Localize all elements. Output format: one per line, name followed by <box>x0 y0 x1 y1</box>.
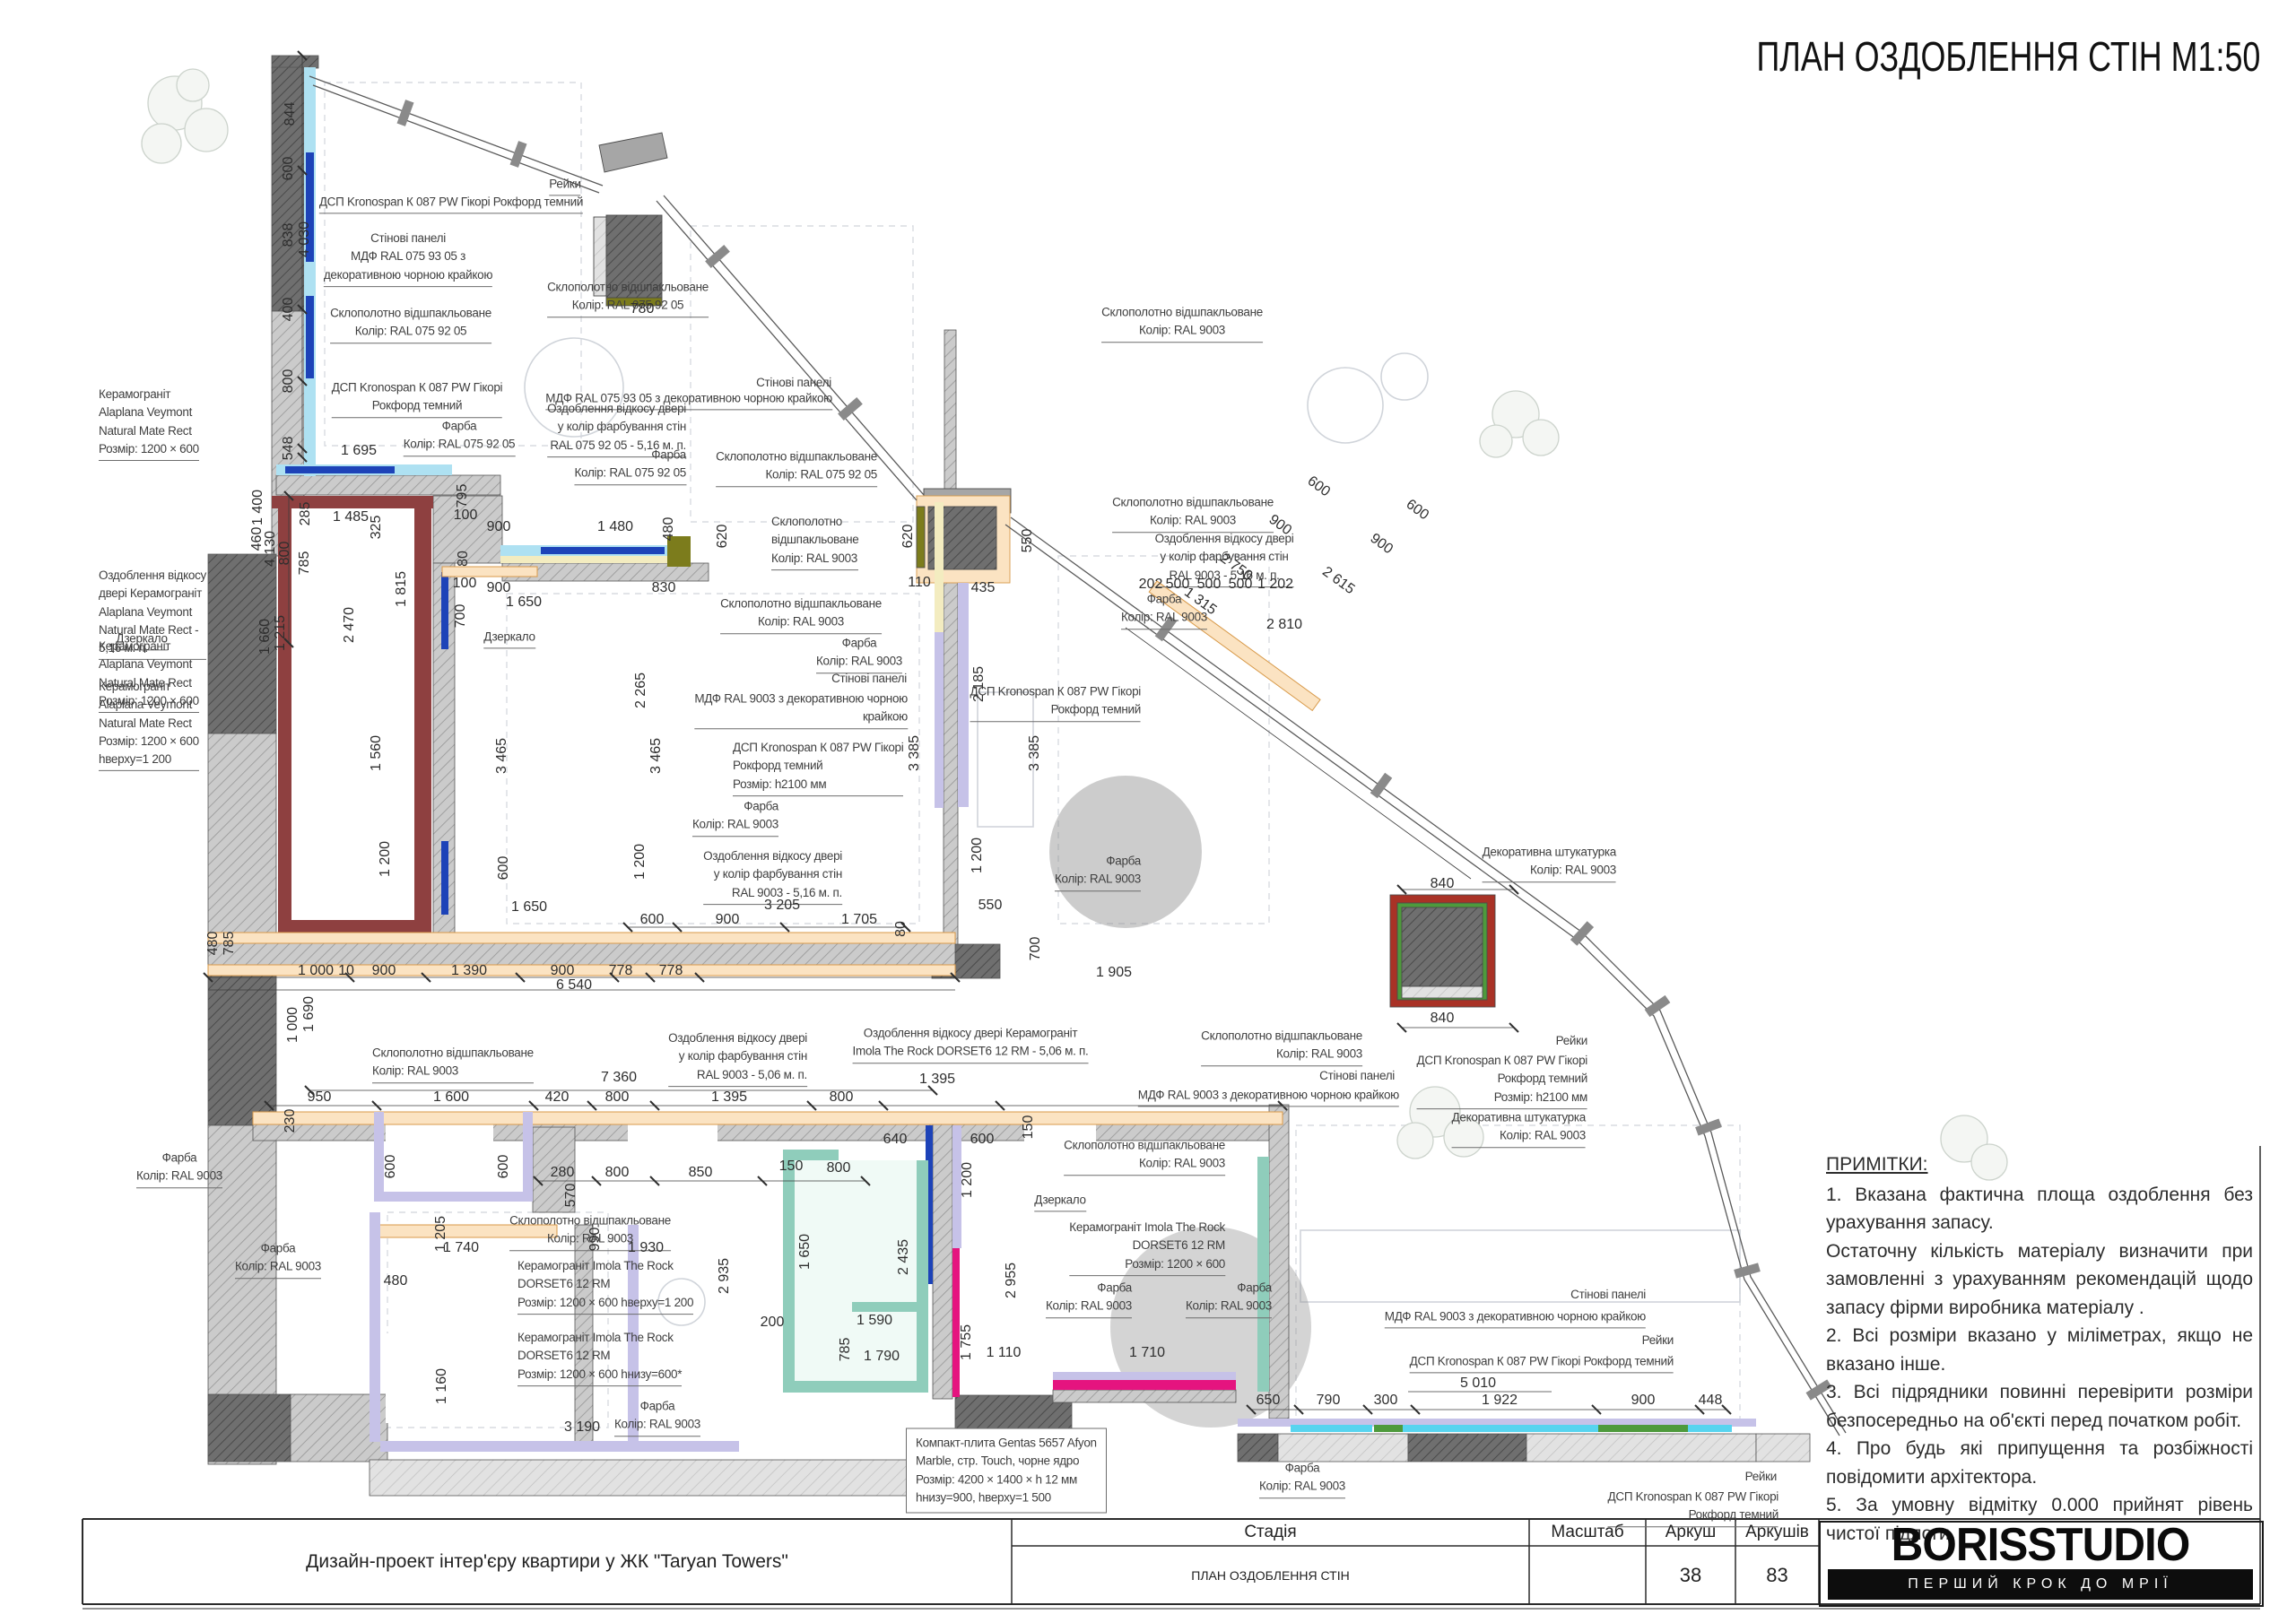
annotation-label: Фарба Колір: RAL 075 92 05 <box>574 446 686 485</box>
dimension-text: 990 <box>587 1228 604 1252</box>
dimension-text: 6 540 <box>556 977 592 994</box>
dimension-text: 800 <box>605 1165 630 1181</box>
dimension-text: 1 905 <box>1096 965 1132 981</box>
dimension-text: 325 <box>369 516 385 540</box>
sheet-number-value: 38 <box>1646 1546 1735 1604</box>
dimension-text: 448 <box>1699 1393 1723 1409</box>
annotation-label: Склополотно відшпакльоване Колір: RAL 90… <box>372 1044 534 1083</box>
dimension-text: 285 <box>298 502 314 526</box>
dimension-text: 1 815 <box>394 571 410 607</box>
notes-list: 1. Вказана фактична площа оздоблення без… <box>1826 1181 2253 1549</box>
dimension-text: 230 <box>283 1109 299 1133</box>
dimension-text: 480 <box>384 1273 408 1289</box>
dimension-text: 548 <box>281 437 297 461</box>
dimension-text: 1 695 <box>341 443 377 459</box>
annotation-label: ДСП Kronospan К 087 PW Гікорі Рокфорд те… <box>1417 1052 1587 1109</box>
dimension-text: 1 200 <box>632 844 648 880</box>
dimension-text: 1 650 <box>511 899 547 916</box>
dimension-text: 5 010 <box>1460 1376 1496 1392</box>
annotation-label: ДСП Kronospan К 087 PW Гікорі Рокфорд те… <box>970 682 1141 722</box>
dimension-text: 1 590 <box>857 1313 892 1329</box>
annotation-label: Оздоблення відкосу двері Керамограніт Im… <box>853 1024 1089 1063</box>
annotation-label: Склополотно відшпакльоване Колір: RAL 90… <box>1201 1027 1362 1066</box>
dimension-text: 900 <box>487 519 511 535</box>
dimension-text: 800 <box>827 1160 851 1176</box>
dimension-text: 1 690 <box>301 996 317 1032</box>
dimension-text: 840 <box>1431 1011 1455 1027</box>
dimension-text: 3 385 <box>1027 735 1043 771</box>
annotation-label: Оздоблення відкосу двері у колір фарбува… <box>668 1029 807 1087</box>
annotation-label: Керамограніт Alaplana Veymont Natural Ma… <box>99 678 199 771</box>
annotation-label: Декоративна штукатурка Колір: RAL 9003 <box>1483 843 1616 882</box>
dimension-text: 1 400 <box>250 490 266 525</box>
dimension-text: 900 <box>372 963 396 979</box>
dimension-text: 550 <box>1020 529 1036 553</box>
notes-block: ПРИМІТКИ: 1. Вказана фактична площа оздо… <box>1826 1150 2253 1548</box>
scale-header: Масштаб <box>1529 1519 1646 1546</box>
dimension-text: 400 <box>281 298 297 322</box>
dimension-text: 1 485 <box>333 509 369 525</box>
dimension-text: 600 <box>496 1155 512 1179</box>
notes-item: 4. Про будь які припущення та розбіжност… <box>1826 1435 2253 1491</box>
dimension-text: 550 <box>978 898 1003 914</box>
dimension-text: 2 955 <box>1004 1263 1020 1298</box>
notes-item: 2. Всі розміри вказано у міліметрах, якщ… <box>1826 1322 2253 1378</box>
dimension-text: 2 470 <box>342 607 358 643</box>
dimension-text: 500 <box>1197 577 1222 593</box>
annotation-label: Фарба Колір: RAL 9003 <box>1046 1279 1132 1318</box>
dimension-text: 850 <box>689 1165 713 1181</box>
annotation-label: Рейки <box>1556 1032 1587 1050</box>
annotation-label: Фарба Колір: RAL 075 92 05 <box>404 417 516 456</box>
dimension-text: 2 810 <box>1266 617 1302 633</box>
dimension-text: 1 110 <box>987 1345 1022 1361</box>
dimension-text: 1 200 <box>960 1162 976 1198</box>
annotation-label: ДСП Kronospan К 087 PW Гікорі Рокфорд те… <box>319 193 583 213</box>
studio-slogan: ПЕРШИЙ КРОК ДО МРІЇ <box>1828 1569 2253 1600</box>
dimension-text: 1 755 <box>959 1324 975 1360</box>
dimension-text: 3 205 <box>764 898 800 914</box>
annotation-label: Фарба Колір: RAL 9003 <box>1259 1459 1345 1498</box>
dimension-text: 3 465 <box>494 738 510 774</box>
notes-item: 3. Всі підрядники повинні перевірити роз… <box>1826 1378 2253 1435</box>
dimension-text: 600 <box>640 912 665 928</box>
dimension-text: 785 <box>297 551 313 576</box>
dimension-text: 785 <box>222 932 238 956</box>
dimension-text: 1 790 <box>864 1349 900 1365</box>
dimension-text: 2 935 <box>717 1258 733 1294</box>
dimension-text: 785 <box>838 1338 854 1362</box>
dimension-text: 80 <box>456 551 472 567</box>
stage-header: Стадія <box>1012 1519 1529 1546</box>
studio-logo: BORISSTUDIO <box>1833 1524 2248 1566</box>
dimension-text: 1 000 <box>298 963 334 979</box>
dimension-text: 800 <box>830 1089 854 1106</box>
notes-heading: ПРИМІТКИ: <box>1826 1150 2253 1179</box>
annotation-label: Керамограніт Alaplana Veymont Natural Ma… <box>99 386 199 461</box>
dimension-text: 844 <box>283 102 299 126</box>
dimension-text: 1 000 <box>285 1007 301 1043</box>
dimension-text: 2 435 <box>896 1239 912 1275</box>
annotation-label: Склополотно відшпакльоване Колір: RAL 90… <box>1112 493 1274 533</box>
sheet-number-header: Аркуш <box>1646 1519 1735 1546</box>
dimension-text: 800 <box>281 369 297 394</box>
dimension-text: 1 922 <box>1482 1393 1518 1409</box>
dimension-text: 100 <box>453 576 477 592</box>
annotation-label: МДФ RAL 9003 з декоративною чорною крайк… <box>694 690 908 729</box>
annotation-label: МДФ RAL 9003 з декоративною чорною крайк… <box>1385 1307 1646 1328</box>
dimension-text: 778 <box>609 963 633 979</box>
annotation-label: ДСП Kronospan К 087 PW Гікорі Рокфорд те… <box>1410 1352 1674 1373</box>
dimension-text: 1 480 <box>597 519 633 535</box>
annotation-label: Керамограніт Imola The Rock DORSET6 12 R… <box>517 1257 693 1315</box>
dimension-text: 480 <box>205 932 222 956</box>
door-openings <box>386 1121 1096 1423</box>
dimension-text: 100 <box>454 508 478 524</box>
dimension-text: 950 <box>308 1089 332 1106</box>
dimension-text: 800 <box>605 1089 630 1106</box>
dimension-text: 1 705 <box>841 912 877 928</box>
annotation-label: Керамограніт Imola The Rock DORSET6 12 R… <box>1069 1219 1225 1276</box>
dimension-text: 840 <box>1431 876 1455 892</box>
dimension-text: 4 030 <box>297 221 313 257</box>
dimension-text: 620 <box>715 525 731 549</box>
annotation-label: Рейки <box>1745 1468 1777 1486</box>
annotation-label: Стінові панелі <box>831 670 907 688</box>
annotation-label: Склополотно відшпакльоване Колір: RAL 90… <box>1101 303 1263 343</box>
dimension-text: 480 <box>661 517 677 542</box>
dimension-text: 10 <box>338 963 354 979</box>
dimension-text: 1 205 <box>433 1216 449 1252</box>
dimension-text: 1 650 <box>797 1234 813 1270</box>
dimension-text: 200 <box>761 1315 785 1331</box>
dimension-text: 1 660 <box>257 619 274 655</box>
sheet-title: ПЛАН ОЗДОБЛЕННЯ СТІН М1:50 <box>1756 32 2260 81</box>
annotation-label: Склополотно відшпакльоване Колір: RAL 90… <box>720 595 882 634</box>
annotation-label: Компакт-плита Gentas 5657 Afyon Marble, … <box>906 1428 1107 1514</box>
dimension-text: 800 <box>277 542 293 566</box>
dimension-text: 700 <box>453 604 469 629</box>
dimension-text: 3 190 <box>564 1419 600 1436</box>
dimension-text: 790 <box>1317 1393 1341 1409</box>
annotation-label: Склополотно відшпакльоване Колір: RAL 07… <box>547 278 709 317</box>
annotation-label: Стінові панелі <box>1570 1286 1646 1304</box>
annotation-label: ДСП Kronospan К 087 PW Гікорі Рокфорд те… <box>332 378 502 418</box>
dimension-text: 1 710 <box>1129 1345 1165 1361</box>
dimension-text: 1 202 <box>1257 577 1293 593</box>
dimension-text: 1 160 <box>434 1368 450 1404</box>
dimension-text: 420 <box>545 1089 570 1106</box>
annotation-label: МДФ RAL 9003 з декоративною чорною крайк… <box>1138 1086 1399 1107</box>
dimension-text: 780 <box>631 301 655 317</box>
drawing-sheet: { "title": "ПЛАН ОЗДОБЛЕННЯ СТІН М1:50",… <box>0 0 2296 1623</box>
annotation-label: Фарба Колір: RAL 9003 <box>235 1239 321 1279</box>
dimension-text: 600 <box>496 856 512 881</box>
notes-item: 1. Вказана фактична площа оздоблення без… <box>1826 1181 2253 1237</box>
annotation-label: Фарба Колір: RAL 9003 <box>1055 852 1141 891</box>
annotation-label: Керамограніт Imola The Rock DORSET6 12 R… <box>517 1329 682 1386</box>
dimension-text: 2 265 <box>633 673 649 708</box>
annotation-label: Стінові панелі <box>1319 1067 1395 1085</box>
dimension-text: 1 395 <box>919 1072 955 1088</box>
dimension-text: 7 360 <box>601 1070 637 1086</box>
dimension-text: 150 <box>779 1159 804 1175</box>
dimension-text: 600 <box>281 157 297 181</box>
annotation-label: Фарба Колір: RAL 9003 <box>692 797 778 837</box>
dimension-text: 2 185 <box>971 666 987 702</box>
dimension-text: 700 <box>1028 937 1044 961</box>
dimension-text: 1 215 <box>273 615 289 651</box>
dimension-text: 778 <box>659 963 683 979</box>
dimension-text: 80 <box>893 921 909 937</box>
sheets-total-value: 83 <box>1735 1546 1819 1604</box>
dimension-text: 1 390 <box>451 963 487 979</box>
annotation-label: Рейки <box>1642 1332 1674 1350</box>
dimension-text: 600 <box>970 1132 995 1148</box>
dimension-text: 3 465 <box>648 738 665 774</box>
dimension-text: 900 <box>1631 1393 1656 1409</box>
floor-plan-canvas: ПЛАН ОЗДОБЛЕННЯ СТІН М1:50 РейкиДСП Kron… <box>0 0 2296 1623</box>
dimension-text: 838 <box>281 223 297 247</box>
annotation-label: Декоративна штукатурка Колір: RAL 9003 <box>1452 1108 1586 1148</box>
dimension-text: 900 <box>716 912 740 928</box>
dimension-text: 3 385 <box>907 735 923 771</box>
annotation-label: Фарба Колір: RAL 9003 <box>136 1149 222 1188</box>
annotation-label: Стінові панелі МДФ RAL 075 93 05 з декор… <box>324 230 492 287</box>
annotation-label: Склополотно відшпакльоване Колір: RAL 07… <box>330 304 491 343</box>
annotation-label: Фарба Колір: RAL 9003 <box>614 1397 700 1436</box>
dimension-text: 1 560 <box>369 735 385 771</box>
annotation-label: Оздоблення відкосу двері у колір фарбува… <box>703 847 842 905</box>
dimension-text: 1 650 <box>506 595 542 611</box>
dimension-text: 110 <box>908 575 931 591</box>
scale-value <box>1529 1546 1646 1604</box>
dimension-text: 460 <box>249 527 265 551</box>
annotation-label: Склополотно відшпакльоване Колір: RAL 90… <box>771 513 858 570</box>
dimension-text: 1 395 <box>711 1089 747 1106</box>
notes-item: Остаточну кількість матеріалу визначити … <box>1826 1237 2253 1323</box>
dimension-text: 300 <box>1374 1393 1398 1409</box>
annotation-label: Дзеркало <box>1034 1191 1086 1211</box>
sheets-total-header: Аркушів <box>1735 1519 1819 1546</box>
dimension-text: 280 <box>551 1165 575 1181</box>
project-title-cell: Дизайн-проект інтер'єру квартири у ЖК "T… <box>83 1519 1012 1604</box>
dimension-text: 795 <box>455 484 471 508</box>
dimension-text: 150 <box>1021 1115 1037 1140</box>
dimension-text: 650 <box>1257 1393 1281 1409</box>
dimension-text: 202 <box>1139 577 1163 593</box>
annotation-label: Склополотно відшпакльоване Колір: RAL 90… <box>1064 1136 1225 1176</box>
annotation-label: Фарба Колір: RAL 9003 <box>816 634 902 673</box>
dimension-text: 435 <box>971 580 996 596</box>
annotation-label: Дзеркало <box>483 628 535 648</box>
dimension-text: 1 200 <box>970 838 986 873</box>
annotation-label: Склополотно відшпакльоване Колір: RAL 07… <box>716 447 877 487</box>
stage-value: ПЛАН ОЗДОБЛЕННЯ СТІН <box>1012 1546 1529 1604</box>
dimension-text: 640 <box>883 1132 908 1148</box>
dimension-text: 1 930 <box>628 1240 664 1256</box>
dimension-text: 600 <box>383 1155 399 1179</box>
annotation-label: ДСП Kronospan К 087 PW Гікорі Рокфорд те… <box>733 739 903 796</box>
dimension-text: 620 <box>900 525 917 549</box>
dimension-text: 570 <box>563 1184 579 1208</box>
annotation-label: Фарба Колір: RAL 9003 <box>1186 1279 1272 1318</box>
dimension-text: 830 <box>652 580 676 596</box>
dimension-text: 1 200 <box>378 841 394 877</box>
dimension-text: 1 600 <box>433 1089 469 1106</box>
